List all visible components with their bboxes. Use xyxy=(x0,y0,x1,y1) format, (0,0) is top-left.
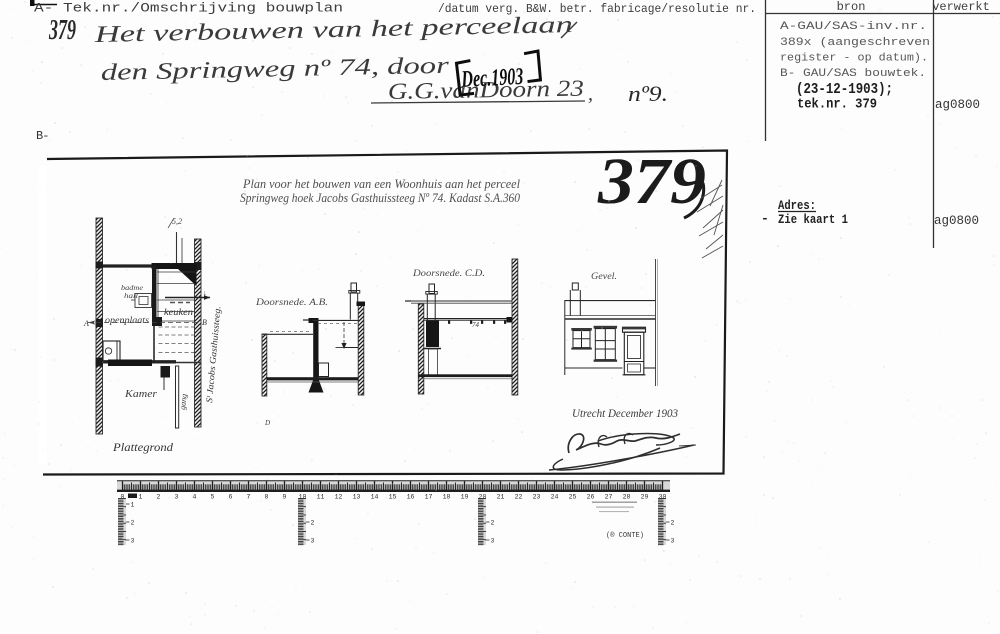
svg-text:D: D xyxy=(264,419,270,427)
svg-text:↓: ↓ xyxy=(203,289,207,297)
svg-text:15: 15 xyxy=(389,494,397,501)
svg-text:17: 17 xyxy=(425,494,433,501)
svg-text:21: 21 xyxy=(497,494,505,501)
svg-text:74: 74 xyxy=(472,321,480,329)
svg-text:3: 3 xyxy=(671,538,675,545)
svg-text:29: 29 xyxy=(641,494,649,501)
svg-text:2: 2 xyxy=(491,520,495,527)
svg-text:Doorsnede. C.D.: Doorsnede. C.D. xyxy=(412,268,485,278)
svg-text:12: 12 xyxy=(335,494,343,501)
svg-text:B- GAU/SAS bouwtek.: B- GAU/SAS bouwtek. xyxy=(780,68,926,80)
svg-text:22: 22 xyxy=(515,494,523,501)
svg-text:nº9.: nº9. xyxy=(628,81,668,106)
svg-text:379: 379 xyxy=(597,145,706,218)
svg-text:2: 2 xyxy=(131,520,135,527)
svg-text:-: - xyxy=(761,211,769,226)
svg-text:6: 6 xyxy=(229,494,233,501)
svg-text:7: 7 xyxy=(247,494,251,501)
svg-text:,: , xyxy=(588,83,593,105)
svg-text:19: 19 xyxy=(461,494,469,501)
svg-text:Dec.1903: Dec.1903 xyxy=(460,64,524,93)
svg-text:1: 1 xyxy=(139,494,143,501)
svg-text:3: 3 xyxy=(311,538,315,545)
svg-text:11: 11 xyxy=(317,494,325,501)
svg-text:openplaats: openplaats xyxy=(105,316,149,326)
svg-text:5: 5 xyxy=(211,494,215,501)
svg-text:B: B xyxy=(202,318,207,327)
svg-text:379: 379 xyxy=(48,15,76,46)
svg-text:Zie kaart 1: Zie kaart 1 xyxy=(778,213,848,227)
svg-text:keuken: keuken xyxy=(164,307,194,317)
svg-text:24: 24 xyxy=(551,494,559,501)
svg-text:Springweg hoek Jacobs Gasthuis: Springweg hoek Jacobs Gasthuissteeg Nº 7… xyxy=(240,190,520,205)
svg-text:26: 26 xyxy=(587,494,595,501)
svg-text:16: 16 xyxy=(407,494,415,501)
svg-text:4: 4 xyxy=(193,494,197,501)
svg-text:27: 27 xyxy=(605,494,613,501)
svg-text:(® CONTE): (® CONTE) xyxy=(606,531,644,540)
svg-text:Plan voor het bouwen van een W: Plan voor het bouwen van een Woonhuis aa… xyxy=(242,176,520,191)
svg-text:2: 2 xyxy=(671,520,675,527)
svg-text:Gevel.: Gevel. xyxy=(591,271,617,281)
svg-text:14: 14 xyxy=(371,494,379,501)
svg-text:Kamer: Kamer xyxy=(124,389,157,400)
svg-text:badme: badme xyxy=(121,284,143,292)
svg-text:ag0800: ag0800 xyxy=(935,98,980,112)
svg-text:A- Tek.nr./Omschrijving bouwpl: A- Tek.nr./Omschrijving bouwplan xyxy=(34,2,343,16)
svg-text:ag0800: ag0800 xyxy=(934,214,979,228)
svg-text:28: 28 xyxy=(623,494,631,501)
svg-text:2: 2 xyxy=(311,520,315,527)
svg-text:9: 9 xyxy=(283,494,287,501)
svg-text:3: 3 xyxy=(491,538,495,545)
svg-text:Utrecht December 1903: Utrecht December 1903 xyxy=(572,408,678,420)
svg-text:bron: bron xyxy=(837,0,866,14)
svg-text:3: 3 xyxy=(131,538,135,545)
svg-text:B-: B- xyxy=(36,129,48,143)
svg-text:8: 8 xyxy=(265,494,269,501)
svg-text:gang: gang xyxy=(178,393,189,410)
svg-text:A-GAU/SAS-inv.nr.: A-GAU/SAS-inv.nr. xyxy=(780,21,927,33)
svg-text:tek.nr. 379: tek.nr. 379 xyxy=(797,97,877,113)
svg-text:18: 18 xyxy=(443,494,451,501)
svg-text:1: 1 xyxy=(131,502,135,509)
svg-text:13: 13 xyxy=(353,494,361,501)
svg-text:Plattegrond: Plattegrond xyxy=(112,440,174,454)
svg-text:A: A xyxy=(83,319,89,328)
svg-text:389x (aangeschreven: 389x (aangeschreven xyxy=(780,37,930,49)
svg-text:3: 3 xyxy=(175,494,179,501)
svg-text:2: 2 xyxy=(157,494,161,501)
svg-text:register - op datum).: register - op datum). xyxy=(780,53,928,65)
svg-text:25: 25 xyxy=(569,494,577,501)
svg-text:Doorsnede. A.B.: Doorsnede. A.B. xyxy=(255,297,328,307)
svg-text:23: 23 xyxy=(533,494,541,501)
svg-text:verwerkt: verwerkt xyxy=(932,0,990,14)
